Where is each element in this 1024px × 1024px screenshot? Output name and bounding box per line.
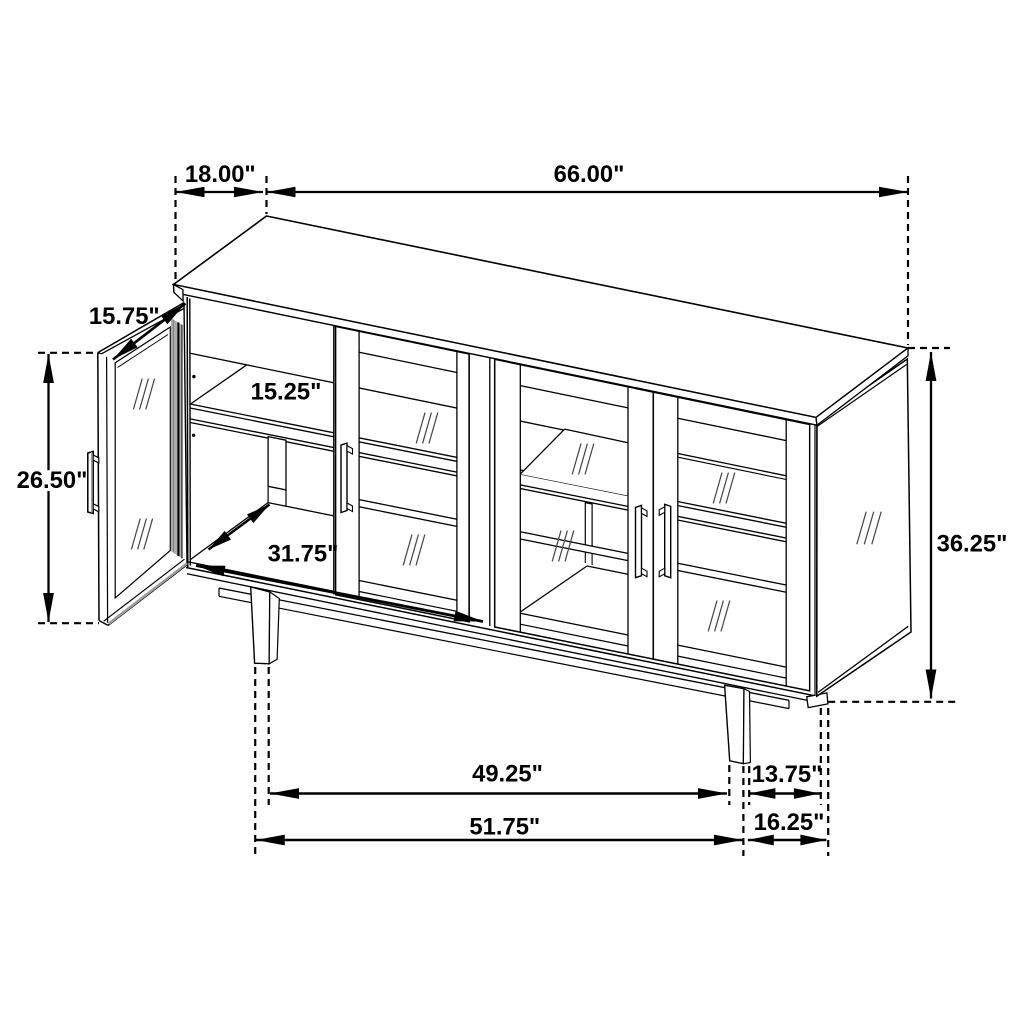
svg-text:49.25": 49.25": [472, 761, 543, 788]
svg-text:15.25": 15.25": [251, 379, 322, 406]
svg-text:51.75": 51.75": [469, 814, 540, 841]
svg-text:16.25": 16.25": [754, 809, 825, 836]
svg-text:31.75": 31.75": [268, 541, 339, 568]
svg-text:66.00": 66.00": [554, 161, 625, 188]
svg-text:13.75": 13.75": [752, 761, 823, 788]
svg-text:18.00": 18.00": [185, 161, 256, 188]
svg-text:26.50": 26.50": [17, 467, 88, 494]
svg-text:15.75": 15.75": [89, 303, 160, 330]
svg-text:36.25": 36.25": [937, 531, 1008, 558]
